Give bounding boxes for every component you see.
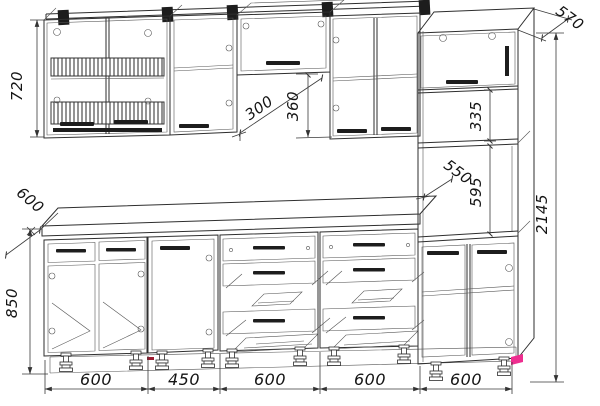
hinge-hole-icon bbox=[49, 273, 55, 279]
dim-label-width-3: 600 bbox=[254, 370, 286, 389]
drip-tray bbox=[53, 128, 162, 132]
dim-label-600-depth: 600 bbox=[13, 184, 48, 217]
tall-open-niche bbox=[512, 131, 530, 233]
dimension-595: 595 bbox=[467, 146, 490, 234]
dimension-570: 570 bbox=[518, 2, 587, 41]
dim-label-360: 360 bbox=[284, 91, 302, 121]
door-swing-mark bbox=[52, 302, 141, 349]
wall-mounting-rail bbox=[46, 0, 430, 25]
dimension-720: 720 bbox=[8, 20, 44, 137]
hinge-hole-icon bbox=[226, 100, 232, 106]
door-handle bbox=[477, 250, 507, 254]
plinth-clip-accent bbox=[511, 354, 523, 365]
tall-bottom-doors bbox=[422, 243, 514, 357]
kitchen-drawing-canvas: 720 600 850 300 360 335 550 595 570 bbox=[0, 0, 600, 406]
hinge-hole-icon bbox=[54, 29, 61, 36]
dimension-2145: 2145 bbox=[530, 33, 564, 382]
drawer-handle bbox=[253, 271, 285, 275]
dim-label-300: 300 bbox=[242, 92, 277, 124]
door-handle bbox=[114, 120, 148, 124]
door-handle bbox=[179, 124, 209, 128]
flip-door-handle bbox=[266, 61, 300, 65]
hinge-hole-icon bbox=[138, 271, 144, 277]
dimension-600-depth: 600 bbox=[6, 184, 58, 255]
hinge-hole-icon bbox=[333, 105, 339, 111]
open-drawer-box bbox=[352, 289, 402, 303]
dimension-360: 360 bbox=[284, 74, 332, 138]
dimension-335: 335 bbox=[467, 90, 496, 141]
dim-label-width-5: 600 bbox=[450, 370, 482, 389]
drawer-handle bbox=[253, 319, 285, 323]
hinge-hole-icon bbox=[489, 33, 496, 40]
hinge-hole-icon bbox=[333, 37, 339, 43]
dim-label-2145: 2145 bbox=[533, 194, 551, 234]
dimension-850: 850 bbox=[3, 229, 48, 374]
hinge-hole-icon bbox=[440, 35, 447, 42]
base-cabinet-drawers-2 bbox=[320, 229, 424, 349]
base-cabinet-single-door bbox=[148, 235, 218, 353]
drawer-handle bbox=[106, 248, 136, 252]
dim-label-width-2: 450 bbox=[168, 370, 200, 389]
drawer-handle bbox=[353, 316, 385, 320]
dim-label-850: 850 bbox=[3, 288, 21, 318]
dim-label-width-1: 600 bbox=[80, 370, 112, 389]
tall-upper-door bbox=[421, 32, 515, 88]
base-cabinet-drawers-1 bbox=[220, 232, 330, 352]
base-cabinet-doors-1 bbox=[44, 237, 147, 356]
dim-label-335: 335 bbox=[467, 101, 485, 131]
dimension-300: 300 bbox=[232, 78, 322, 141]
dim-label-720: 720 bbox=[8, 71, 26, 101]
hinge-hole-icon bbox=[49, 328, 55, 334]
hinge-hole-icon bbox=[145, 30, 152, 37]
drawer-handle bbox=[253, 246, 285, 250]
hinge-hole-icon bbox=[506, 339, 513, 346]
dish-rack-lower bbox=[51, 102, 164, 132]
hinge-hole-icon bbox=[206, 329, 212, 335]
dish-rack-upper bbox=[51, 58, 164, 79]
door-handle bbox=[427, 251, 459, 255]
wall-cabinet-double-door bbox=[330, 13, 420, 139]
drawer-handle bbox=[56, 249, 86, 253]
door-handle bbox=[60, 122, 94, 126]
hinge-hole-icon bbox=[318, 21, 324, 27]
drawer-handle bbox=[353, 243, 385, 247]
hinge-hole-icon bbox=[138, 326, 144, 332]
hinge-hole-icon bbox=[243, 23, 249, 29]
dim-label-595: 595 bbox=[467, 177, 485, 207]
dim-label-width-4: 600 bbox=[354, 370, 386, 389]
door-handle bbox=[446, 80, 478, 84]
open-drawer-box bbox=[252, 292, 302, 306]
wall-cabinet-dishrack bbox=[44, 5, 182, 138]
door-handle bbox=[160, 246, 190, 250]
dim-label-570: 570 bbox=[552, 2, 587, 34]
hinge-hole-icon bbox=[206, 255, 212, 261]
door-handle bbox=[337, 129, 367, 133]
drawer-runner bbox=[326, 271, 424, 285]
hinge-hole-icon bbox=[226, 45, 232, 51]
wall-cabinet-single-door bbox=[170, 14, 237, 135]
kitchen-assembly-drawing: 720 600 850 300 360 335 550 595 570 bbox=[0, 0, 600, 406]
hinge-plate-icon bbox=[505, 46, 509, 76]
hinge-hole-icon bbox=[506, 265, 513, 272]
drawer-handle bbox=[353, 268, 385, 272]
door-handle bbox=[381, 127, 411, 131]
